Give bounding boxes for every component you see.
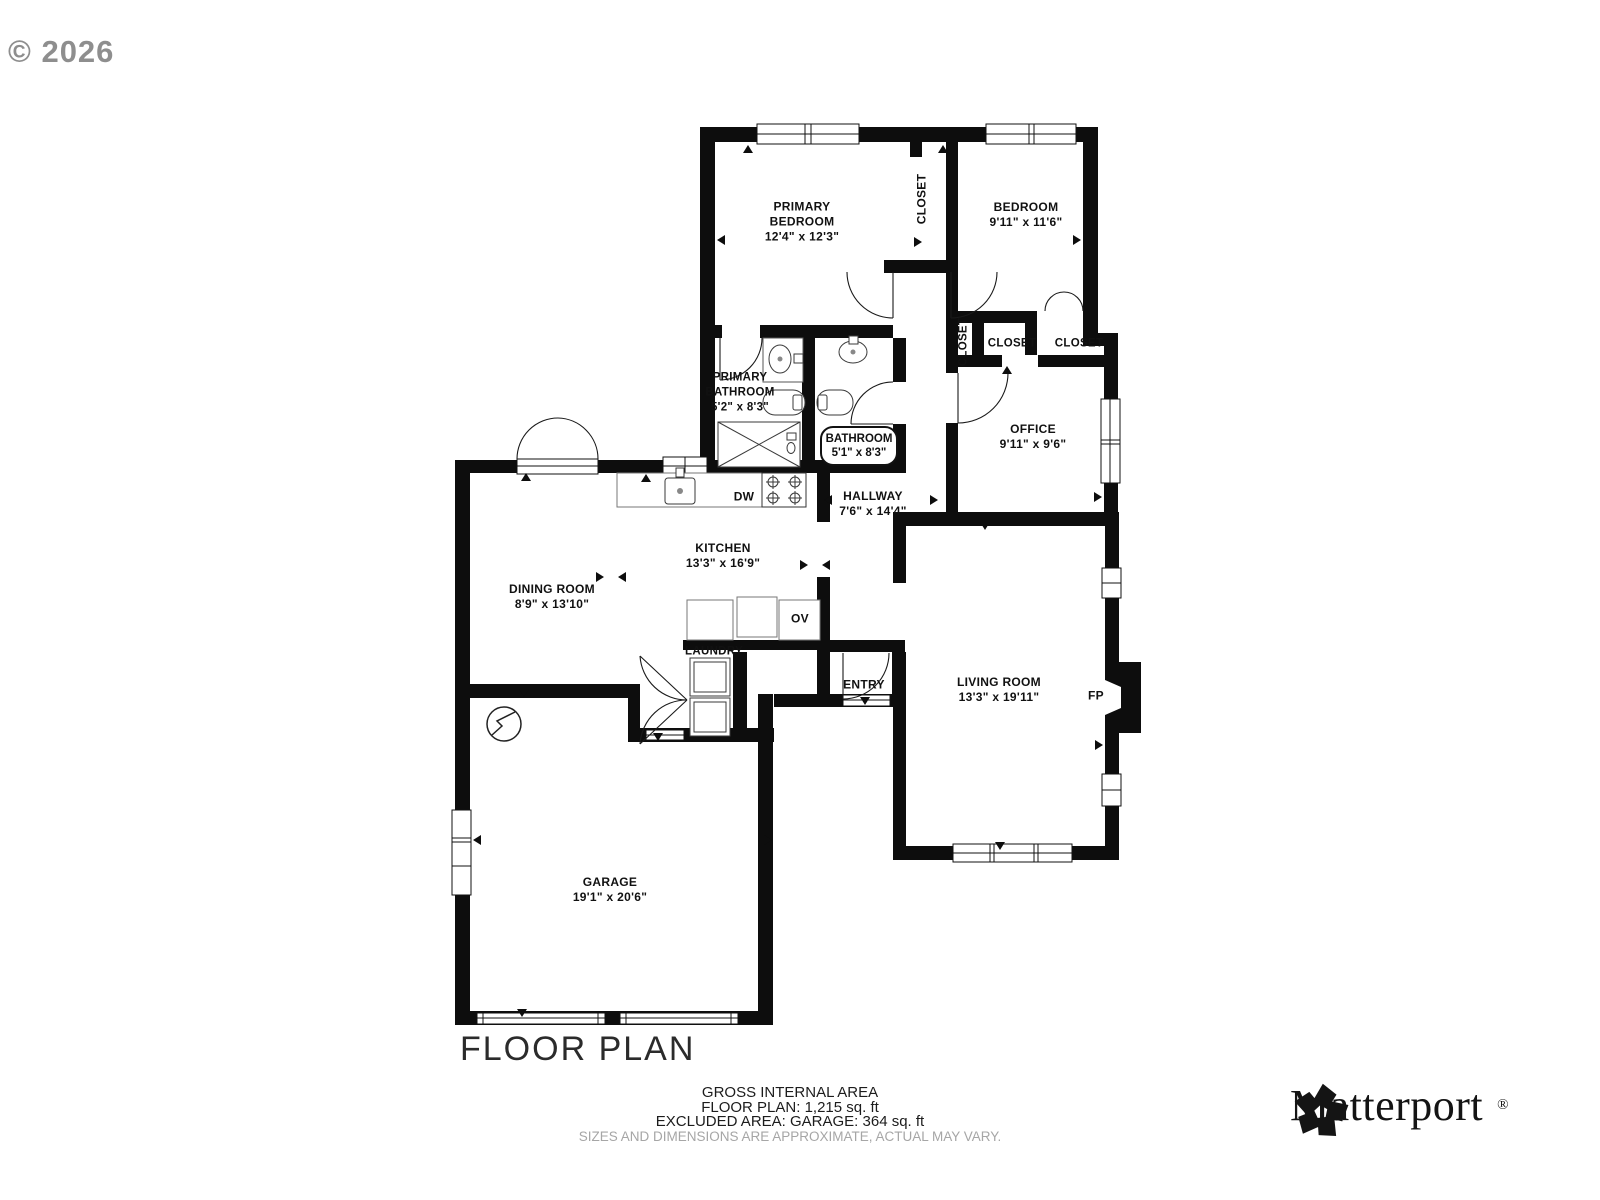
- room-label-garage: GARAGE 19'1" x 20'6": [573, 875, 647, 905]
- bifold-door-arc: [1064, 292, 1083, 311]
- stove: [762, 473, 806, 507]
- fireplace: [1105, 662, 1141, 733]
- room-label-office: OFFICE 9'11" x 9'6": [1000, 422, 1067, 452]
- walls: [455, 127, 1119, 1025]
- copyright-watermark: © 2026: [8, 34, 114, 70]
- door-arc: [851, 382, 893, 424]
- door-arc: [958, 373, 1008, 423]
- window: [953, 844, 1072, 862]
- page-title: FLOOR PLAN: [460, 1030, 695, 1069]
- area-summary: GROSS INTERNAL AREA FLOOR PLAN: 1,215 sq…: [525, 1086, 1055, 1144]
- room-label-primary-bedroom: PRIMARY BEDROOM 12'4" x 12'3": [765, 200, 839, 245]
- garage-door: [620, 1013, 738, 1024]
- counter: [687, 600, 733, 640]
- counter: [737, 597, 777, 637]
- water-heater-icon: [487, 707, 521, 741]
- room-label-kitchen: KITCHEN 13'3" x 16'9": [686, 541, 760, 571]
- bathtub: [817, 390, 853, 415]
- garage-door: [477, 1013, 605, 1024]
- room-label-closet-right: CLOSET: [1055, 337, 1103, 352]
- window: [1102, 774, 1121, 806]
- washer: [690, 658, 730, 696]
- door-arc: [847, 272, 893, 318]
- room-label-closet-primary: CLOSET: [915, 174, 930, 224]
- appliance-label-fireplace: FP: [1088, 689, 1104, 704]
- area-summary-disclaimer: SIZES AND DIMENSIONS ARE APPROXIMATE, AC…: [525, 1130, 1055, 1145]
- appliance-label-dishwasher: DW: [734, 490, 755, 505]
- bifold-door-arc: [1045, 292, 1064, 311]
- window: [986, 124, 1076, 144]
- dryer: [690, 698, 730, 736]
- floor-plan-drawing: [0, 0, 1600, 1200]
- french-door-arc: [517, 418, 558, 459]
- room-label-closet-hall: CLOSET: [957, 318, 972, 366]
- room-label-bedroom: BEDROOM 9'11" x 11'6": [989, 200, 1062, 230]
- door-threshold: [517, 459, 598, 474]
- door-threshold: [646, 730, 684, 740]
- french-door-arc: [558, 418, 598, 459]
- matterport-logo: Matterport®: [1290, 1080, 1509, 1131]
- windows: [452, 124, 1121, 1024]
- room-label-closet-mid: CLOSET: [988, 337, 1036, 352]
- floor-plan-page: © 2026 PRIMARY BEDROOM 12'4" x 12'3" CLO…: [0, 0, 1600, 1200]
- room-label-hallway: HALLWAY 7'6" x 14'4": [839, 489, 906, 519]
- room-label-entry: ENTRY: [843, 678, 885, 693]
- window: [452, 810, 471, 895]
- window: [757, 124, 859, 144]
- window: [1102, 568, 1121, 598]
- appliance-label-oven: OV: [791, 612, 809, 627]
- room-label-living-room: LIVING ROOM 13'3" x 19'11": [957, 675, 1041, 705]
- registered-trademark-symbol: ®: [1497, 1097, 1508, 1114]
- opening-markers: [473, 145, 1103, 1017]
- vanity-sink: [839, 336, 867, 363]
- window: [1101, 399, 1120, 483]
- area-summary-excluded: EXCLUDED AREA: GARAGE: 364 sq. ft: [525, 1115, 1055, 1130]
- room-label-primary-bathroom: PRIMARY BATHROOM 5'2" x 8'3": [705, 371, 774, 416]
- room-label-dining-room: DINING ROOM 8'9" x 13'10": [509, 582, 595, 612]
- room-label-bathroom: BATHROOM 5'1" x 8'3": [820, 426, 898, 466]
- room-label-laundry: LAUNDRY: [685, 645, 743, 660]
- matterport-pinwheel-icon: [1290, 1080, 1352, 1144]
